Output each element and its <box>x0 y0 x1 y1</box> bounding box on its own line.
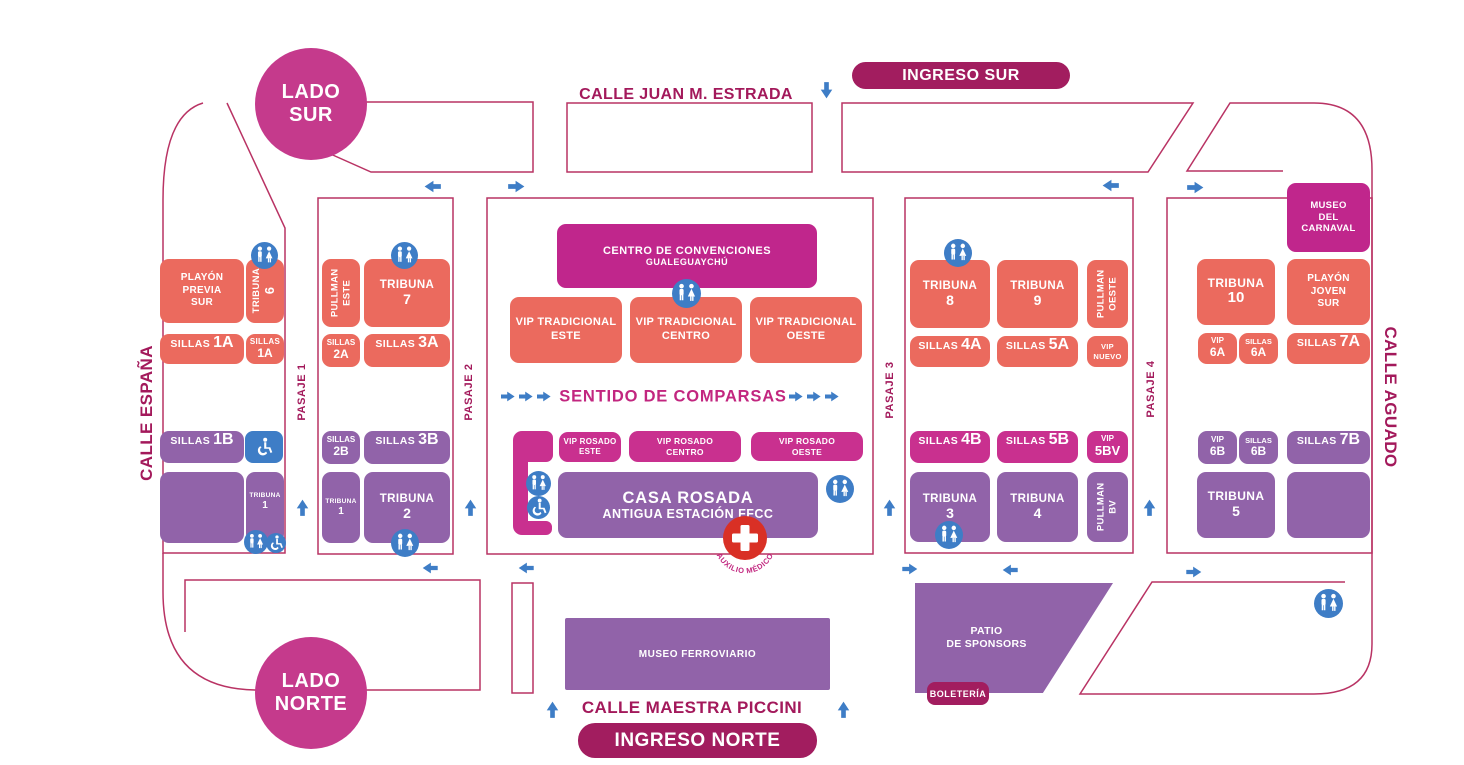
arrow-right-icon <box>902 563 918 575</box>
block-vip-rosado-este[interactable]: VIP ROSADO ESTE <box>559 432 621 462</box>
block-number: 7 <box>403 292 411 308</box>
block-tribuna-9[interactable]: TRIBUNA 9 <box>997 260 1078 328</box>
block-name: TRIBUNA <box>1010 493 1065 506</box>
block-name: TRIBUNA <box>1208 490 1265 503</box>
block-sillas-2a[interactable]: SILLAS 2A <box>322 334 360 367</box>
block-number: 2 <box>403 506 411 522</box>
block-number: 10 <box>1228 290 1245 307</box>
arrow-right-icon <box>537 391 551 402</box>
block-sillas-1a-small[interactable]: SILLAS 1A <box>246 334 284 364</box>
block-vip-nuevo[interactable]: VIP NUEVO <box>1087 336 1128 367</box>
block-label: VIP 6B <box>1210 436 1225 458</box>
arrow-up-icon <box>546 701 559 718</box>
block-number: 5 <box>1232 504 1240 520</box>
block-vip-tradicional-este[interactable]: VIP TRADICIONAL ESTE <box>510 297 622 363</box>
block-tribuna-10[interactable]: TRIBUNA 10 <box>1197 259 1275 325</box>
block-label: TRIBUNA 8 <box>923 280 978 309</box>
block-label: TRIBUNA 6 <box>252 268 277 314</box>
restroom-icon <box>672 279 701 308</box>
block-sillas-6a[interactable]: SILLAS 6A <box>1239 333 1278 364</box>
block-tribuna-5[interactable]: TRIBUNA 5 <box>1197 472 1275 538</box>
block-label: TRIBUNA 1 <box>249 492 280 510</box>
arrow-right-icon <box>825 391 839 402</box>
block-vip-6a[interactable]: VIP 6A <box>1198 333 1237 364</box>
block-name: TRIBUNA <box>325 498 356 505</box>
block-name: SILLAS <box>375 435 415 447</box>
arrow-right-icon <box>789 391 803 402</box>
block-sillas-4b[interactable]: SILLAS4B <box>910 431 990 463</box>
block-pullman-este[interactable]: PULLMAN ESTE <box>322 259 360 327</box>
block-name: SILLAS <box>918 340 958 352</box>
street-calle-espana: CALLE ESPAÑA <box>137 345 157 481</box>
boleteria-label: BOLETERÍA <box>927 682 989 705</box>
block-name: TRIBUNA <box>380 279 435 292</box>
block-label: VIP TRADICIONAL CENTRO <box>636 316 737 344</box>
block-name: SILLAS <box>170 338 210 350</box>
block-number: 1 <box>338 506 344 517</box>
block-vip-6b[interactable]: VIP 6B <box>1198 431 1237 464</box>
arrow-right-icon <box>1187 181 1204 194</box>
block-vip-tradicional-oeste[interactable]: VIP TRADICIONAL OESTE <box>750 297 862 363</box>
block-name: SILLAS <box>918 435 958 447</box>
block-number: 3 <box>946 506 954 522</box>
block-name: SILLAS <box>170 435 210 447</box>
block-number: 3B <box>418 431 438 449</box>
block-sillas-4a[interactable]: SILLAS4A <box>910 336 990 367</box>
block-label: SILLAS 1A <box>250 338 280 360</box>
block-sillas-7a[interactable]: SILLAS7A <box>1287 333 1370 364</box>
arrow-up-icon <box>1143 499 1156 516</box>
block-name: TRIBUNA <box>249 492 280 499</box>
restroom-icon <box>1314 589 1343 618</box>
block-label: PULLMAN BV <box>1096 483 1120 532</box>
block-name: TRIBUNA <box>923 280 978 293</box>
block-number: 5B <box>1049 431 1069 449</box>
block-unlabeled-left[interactable] <box>160 472 244 543</box>
block-number: 7B <box>1340 431 1360 449</box>
block-tribuna-4[interactable]: TRIBUNA 4 <box>997 472 1078 542</box>
block-number: 3A <box>418 334 438 352</box>
pasaje-2-label: PASAJE 2 <box>463 363 475 420</box>
block-label: SILLAS 2B <box>327 436 355 458</box>
restroom-icon <box>944 239 972 267</box>
block-label: MUSEO DEL CARNAVAL <box>1301 200 1355 236</box>
block-label: PATIO DE SPONSORS <box>946 625 1026 651</box>
block-label: PULLMAN ESTE <box>329 269 353 318</box>
block-number: 2B <box>333 445 348 458</box>
pasaje-3-label: PASAJE 3 <box>884 361 896 418</box>
block-label: TRIBUNA 1 <box>325 498 356 516</box>
block-number: 1B <box>213 431 233 449</box>
block-label: SILLAS 2A <box>327 339 355 361</box>
block-number: 5A <box>1049 336 1069 354</box>
block-name: TRIBUNA <box>923 493 978 506</box>
restroom-icon <box>526 471 551 496</box>
block-tribuna-8[interactable]: TRIBUNA 8 <box>910 260 990 328</box>
venue-map: PLAYÓN PREVIA SUR TRIBUNA 6 SILLAS1A SIL… <box>0 0 1464 765</box>
wheelchair-icon <box>527 496 550 519</box>
block-label: TRIBUNA 2 <box>380 493 435 522</box>
block-sillas-3b[interactable]: SILLAS3B <box>364 431 450 464</box>
block-vip-5bv[interactable]: VIP 5BV <box>1087 431 1128 463</box>
pasaje-4-label: PASAJE 4 <box>1145 360 1157 417</box>
arrow-right-icon <box>807 391 821 402</box>
wheelchair-icon <box>245 431 283 463</box>
block-number: 9 <box>1034 293 1042 309</box>
sentido-comparsas-label: SENTIDO DE COMPARSAS <box>559 388 786 407</box>
block-label: TRIBUNA 4 <box>1010 493 1065 522</box>
restroom-icon <box>391 529 419 557</box>
block-sillas-1a[interactable]: SILLAS1A <box>160 334 244 364</box>
arrow-left-icon <box>1002 564 1018 576</box>
block-label: VIP TRADICIONAL OESTE <box>756 316 857 344</box>
arrow-left-icon <box>518 562 534 574</box>
block-label: VIP 5BV <box>1095 435 1120 459</box>
block-tribuna-7[interactable]: TRIBUNA 7 <box>364 259 450 327</box>
block-name: TRIBUNA <box>1208 277 1265 290</box>
block-number: 4 <box>1034 506 1042 522</box>
block-sillas-2b[interactable]: SILLAS 2B <box>322 431 360 464</box>
block-number: 2A <box>333 348 348 361</box>
block-sillas-6b[interactable]: SILLAS 6B <box>1239 431 1278 464</box>
block-number: 1A <box>213 334 233 352</box>
block-name: CENTRO DE CONVENCIONES <box>603 245 771 257</box>
street-calle-juan-m-estrada: CALLE JUAN M. ESTRADA <box>579 86 793 104</box>
block-museo-ferroviario[interactable]: MUSEO FERROVIARIO <box>565 618 830 690</box>
block-sillas-3a[interactable]: SILLAS3A <box>364 334 450 367</box>
arrow-left-icon <box>422 562 438 574</box>
block-label: PLAYÓN PREVIA SUR <box>181 272 224 310</box>
block-vip-rosado-oeste[interactable]: VIP ROSADO OESTE <box>751 432 863 461</box>
block-name: SILLAS <box>1297 435 1337 447</box>
block-sillas-5a[interactable]: SILLAS5A <box>997 336 1078 367</box>
block-number: 8 <box>946 293 954 309</box>
block-label: VIP ROSADO OESTE <box>779 436 835 457</box>
block-name: SILLAS <box>375 338 415 350</box>
block-name: SILLAS <box>1006 340 1046 352</box>
block-playon-joven-sur[interactable]: PLAYÓN JOVEN SUR <box>1287 259 1370 325</box>
block-label: MUSEO FERROVIARIO <box>639 649 756 660</box>
arrow-up-icon <box>464 499 477 516</box>
arrow-down-icon <box>820 82 833 99</box>
block-label: CENTRO DE CONVENCIONES GUALEGUAYCHÚ <box>603 245 771 267</box>
block-label: PLAYÓN JOVEN SUR <box>1307 273 1350 311</box>
block-label: TRIBUNA 9 <box>1010 280 1065 309</box>
block-label: TRIBUNA 7 <box>380 279 435 308</box>
arrow-left-icon <box>424 180 441 193</box>
block-pullman-bv[interactable]: PULLMAN BV <box>1087 472 1128 542</box>
arrow-up-icon <box>837 701 850 718</box>
block-number: 6A <box>1251 346 1266 359</box>
block-number: 5BV <box>1095 444 1120 459</box>
arrow-left-icon <box>1102 179 1119 192</box>
block-label: TRIBUNA 10 <box>1208 277 1265 307</box>
restroom-icon <box>251 242 278 269</box>
block-label: VIP ROSADO CENTRO <box>657 436 713 457</box>
arrow-up-icon <box>883 499 896 516</box>
lado-sur-badge: LADO SUR <box>255 48 367 160</box>
block-subname: GUALEGUAYCHÚ <box>646 257 728 267</box>
block-label: TRIBUNA 5 <box>1208 490 1265 519</box>
lado-norte-badge: LADO NORTE <box>255 637 367 749</box>
block-playon-previa-sur[interactable]: PLAYÓN PREVIA SUR <box>160 259 244 323</box>
block-label: PULLMAN OESTE <box>1096 270 1120 319</box>
block-number: 6 <box>263 287 278 294</box>
arrow-right-icon <box>1186 566 1202 578</box>
arrow-right-icon <box>501 391 515 402</box>
block-number: 4B <box>961 431 981 449</box>
block-label: VIP TRADICIONAL ESTE <box>516 316 617 344</box>
restroom-icon <box>391 242 418 269</box>
block-number: 4A <box>961 336 981 354</box>
wheelchair-icon <box>266 533 286 553</box>
restroom-icon <box>935 521 963 549</box>
block-unlabeled-right[interactable] <box>1287 472 1370 538</box>
street-calle-aguado: CALLE AGUADO <box>1380 326 1400 467</box>
block-sillas-1b[interactable]: SILLAS1B <box>160 431 244 463</box>
block-tribuna-1-col2[interactable]: TRIBUNA 1 <box>322 472 360 543</box>
block-name: TRIBUNA <box>1010 280 1065 293</box>
block-name: SILLAS <box>1297 337 1337 349</box>
block-sillas-7b[interactable]: SILLAS7B <box>1287 431 1370 464</box>
block-number: 6B <box>1210 445 1225 458</box>
block-pullman-oeste[interactable]: PULLMAN OESTE <box>1087 260 1128 328</box>
arrow-up-icon <box>296 499 309 516</box>
block-number: 1A <box>257 347 272 360</box>
block-museo-del-carnaval[interactable]: MUSEO DEL CARNAVAL <box>1287 183 1370 252</box>
block-name: SILLAS <box>1006 435 1046 447</box>
block-label: VIP 6A <box>1210 337 1225 359</box>
block-sillas-5b[interactable]: SILLAS5B <box>997 431 1078 463</box>
restroom-icon <box>244 530 268 554</box>
medical-aid-marker: AUXILIO MÉDICO <box>690 504 800 589</box>
ingreso-sur-label: INGRESO SUR <box>852 62 1070 89</box>
arrow-right-icon <box>519 391 533 402</box>
block-number: 7A <box>1340 333 1360 351</box>
arrow-right-icon <box>508 180 525 193</box>
pasaje-1-label: PASAJE 1 <box>296 363 308 420</box>
block-label: SILLAS 6A <box>1245 338 1272 360</box>
block-label: VIP NUEVO <box>1093 342 1121 361</box>
street-calle-maestra-piccini: CALLE MAESTRA PICCINI <box>582 698 802 718</box>
block-number: 1 <box>262 500 268 511</box>
block-vip-rosado-centro[interactable]: VIP ROSADO CENTRO <box>629 431 741 462</box>
block-label: TRIBUNA 3 <box>923 493 978 522</box>
block-number: 6B <box>1251 445 1266 458</box>
block-number: 6A <box>1210 346 1225 359</box>
ingreso-norte-label: INGRESO NORTE <box>578 723 817 758</box>
block-label: SILLAS 6B <box>1245 437 1272 459</box>
block-label: VIP ROSADO ESTE <box>563 437 616 457</box>
restroom-icon <box>826 475 854 503</box>
wheelchair-glyph <box>252 435 276 459</box>
